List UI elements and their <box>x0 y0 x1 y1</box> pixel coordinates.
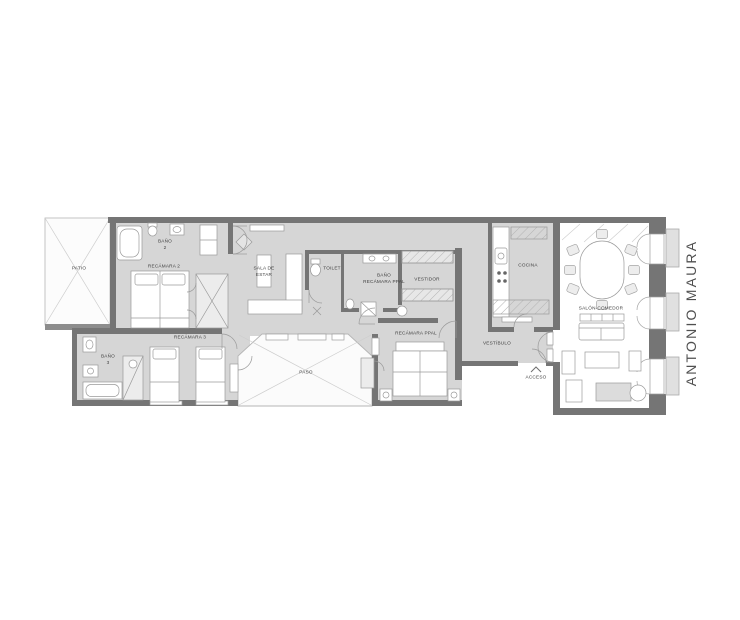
room-label-recamara3: RECÁMARA 3 <box>174 335 206 341</box>
room-label-recamara2: RECÁMARA 2 <box>148 264 180 270</box>
balconies <box>666 229 679 395</box>
room-label-patio: PATIO <box>72 266 86 272</box>
acceso-arrow-icon <box>531 367 541 372</box>
room-label-bano2: BAÑO 2 <box>158 239 172 252</box>
room-label-salon-comedor: SALÓN-COMEDOR <box>579 306 623 312</box>
room-label-toilet: TOILET <box>323 266 340 272</box>
room-label-cocina: COCINA <box>518 263 537 269</box>
room-label-vestibulo: VESTÍBULO <box>483 341 511 347</box>
room-label-paso: PASO <box>299 370 312 376</box>
patio-area <box>45 218 116 330</box>
room-label-acceso: ACCESO <box>526 375 547 381</box>
floorplan-page: PATIO BAÑO 2 RECÁMARA 2 SALA DE ESTAR TO… <box>0 0 740 620</box>
room-label-vestidor: VESTIDOR <box>414 277 439 283</box>
room-label-bano-ppal: BAÑO RECÁMARA PPAL <box>363 273 405 286</box>
room-label-sala-de-estar: SALA DE ESTAR <box>254 266 275 279</box>
room-label-recamara-ppal: RECÁMARA PPAL <box>395 331 437 337</box>
room-label-bano3: BAÑO 3 <box>101 354 115 367</box>
floorplan-drawing <box>0 0 740 620</box>
street-label: ANTONIO MAURA <box>684 240 698 387</box>
